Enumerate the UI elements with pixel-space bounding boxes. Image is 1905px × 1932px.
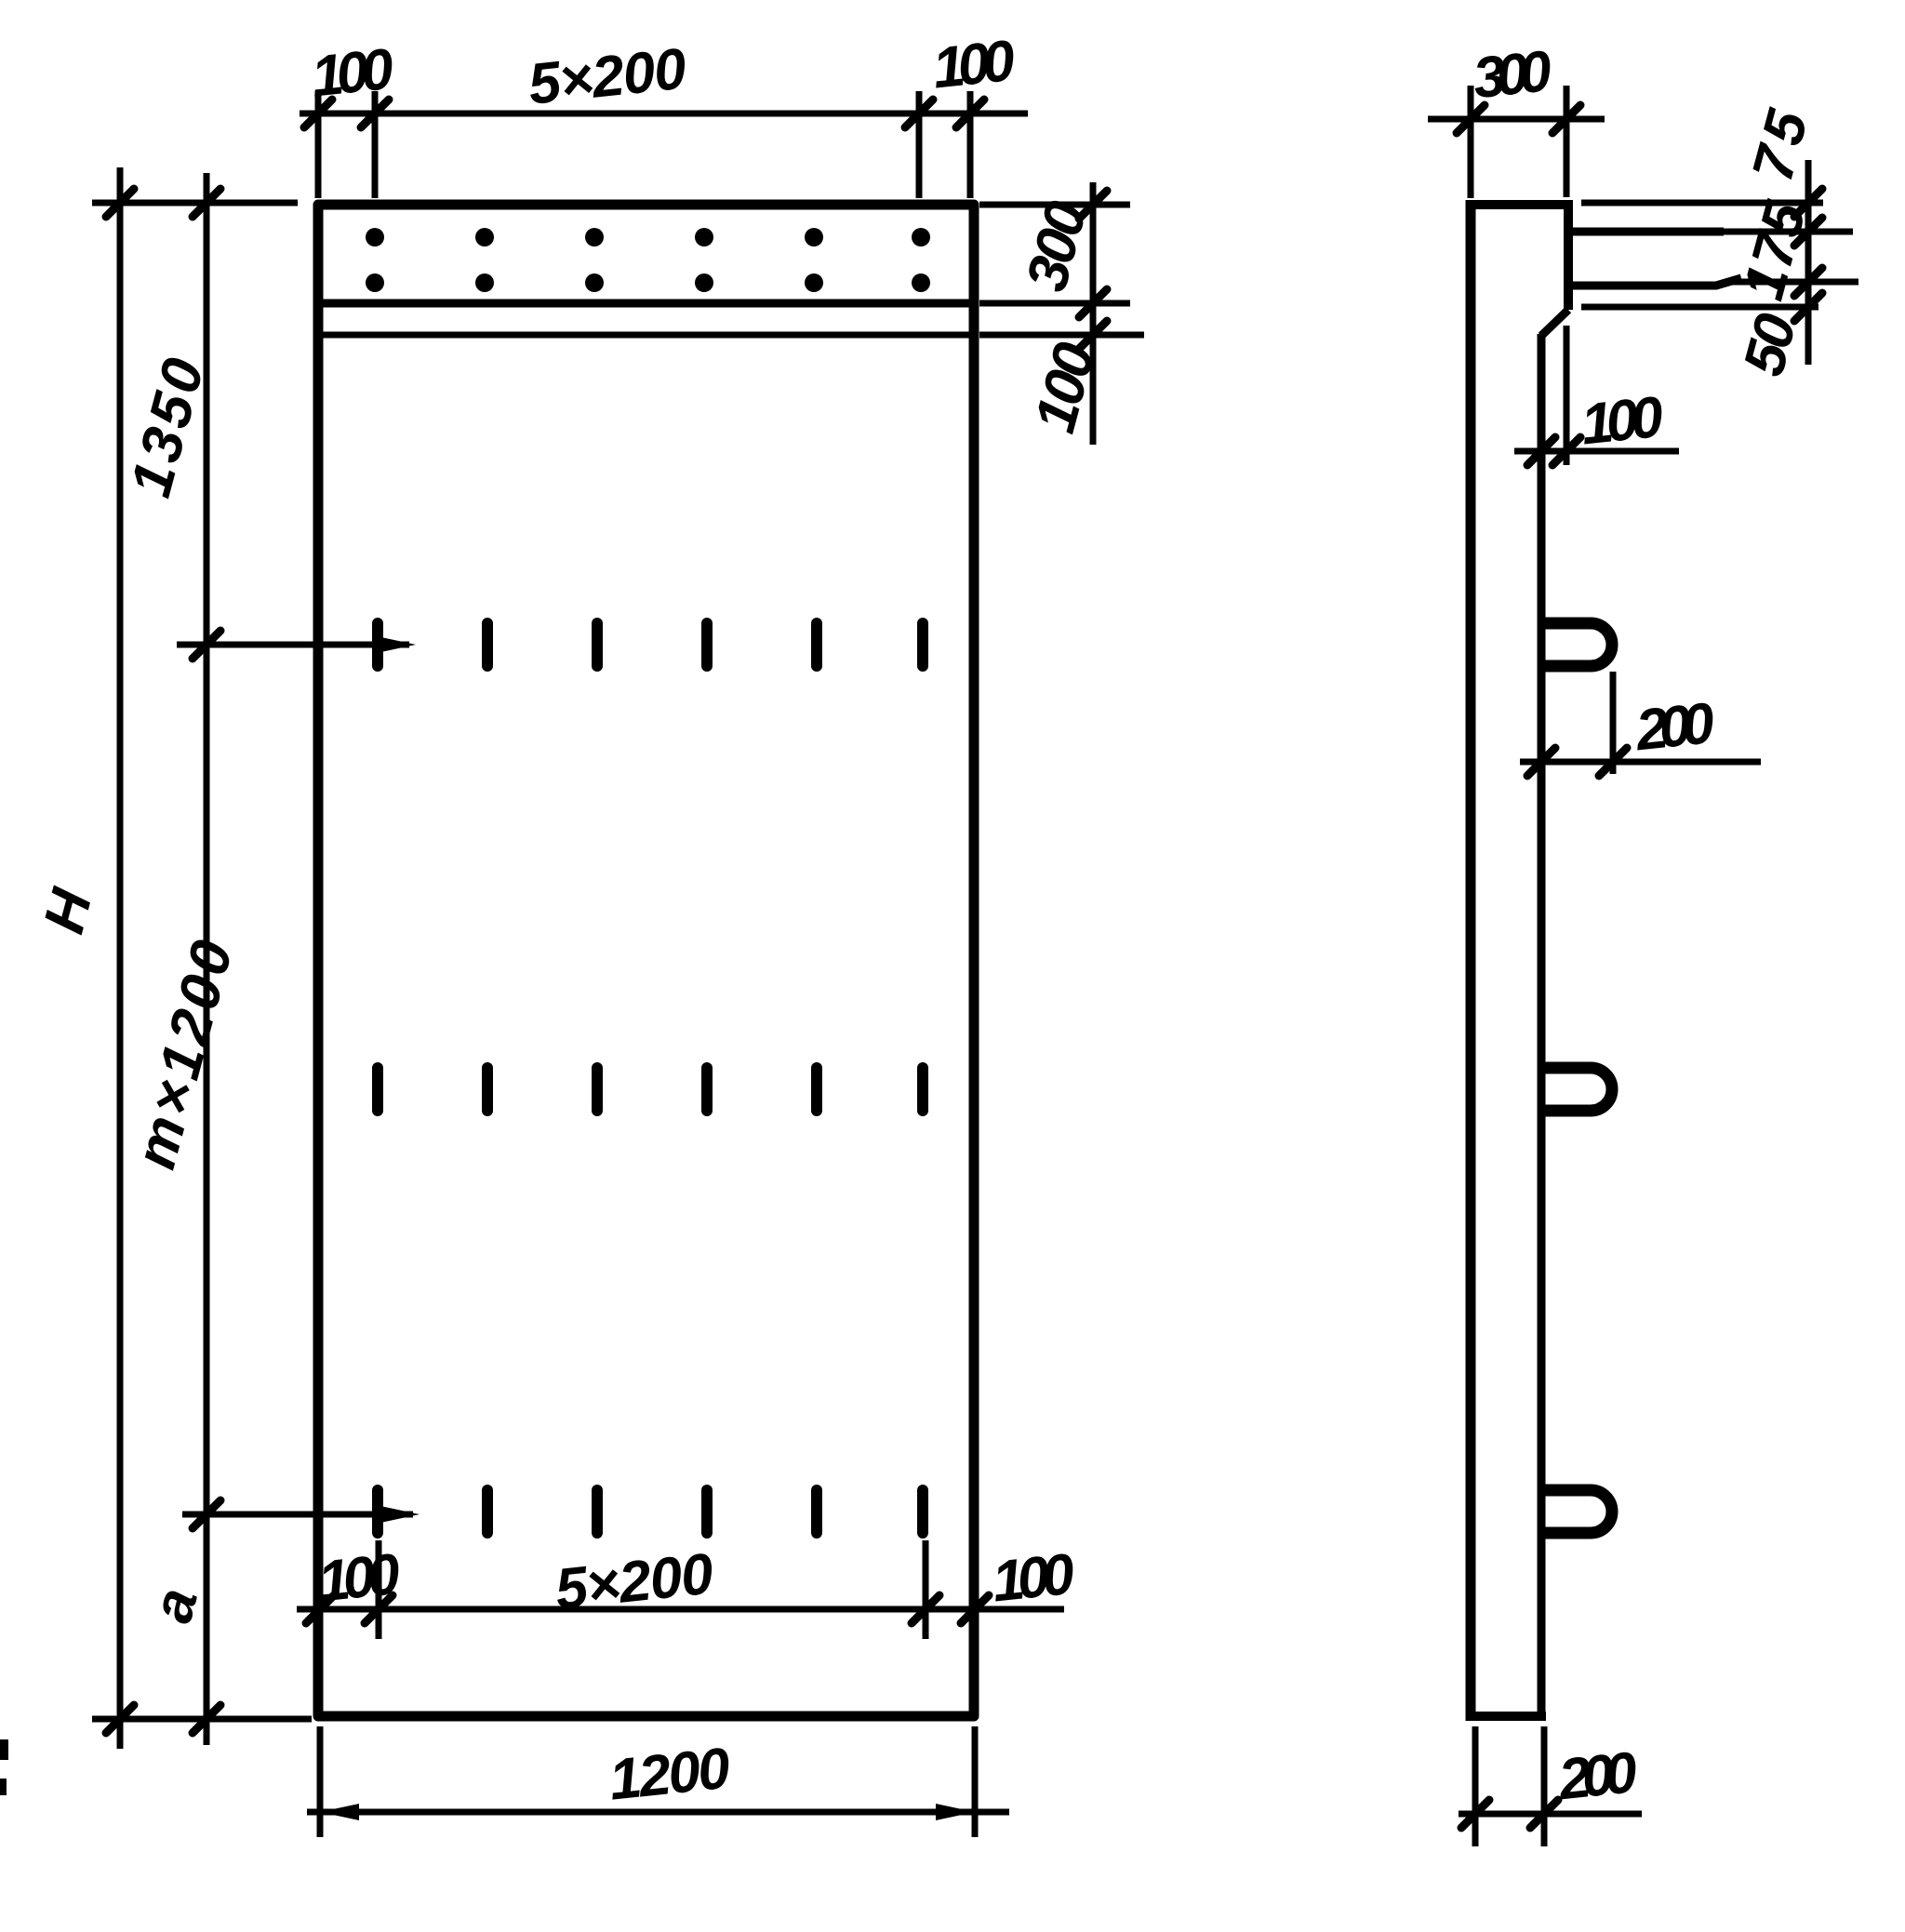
svg-text:200: 200	[1632, 691, 1717, 764]
svg-text:100: 100	[1578, 385, 1666, 458]
svg-text:100: 100	[314, 1542, 403, 1615]
svg-text:100: 100	[929, 29, 1018, 101]
svg-text:200: 200	[1554, 1740, 1640, 1813]
svg-text:100: 100	[989, 1542, 1077, 1615]
svg-text:100: 100	[308, 37, 396, 110]
svg-text:1200: 1200	[606, 1737, 734, 1813]
svg-text:300: 300	[1470, 39, 1554, 111]
